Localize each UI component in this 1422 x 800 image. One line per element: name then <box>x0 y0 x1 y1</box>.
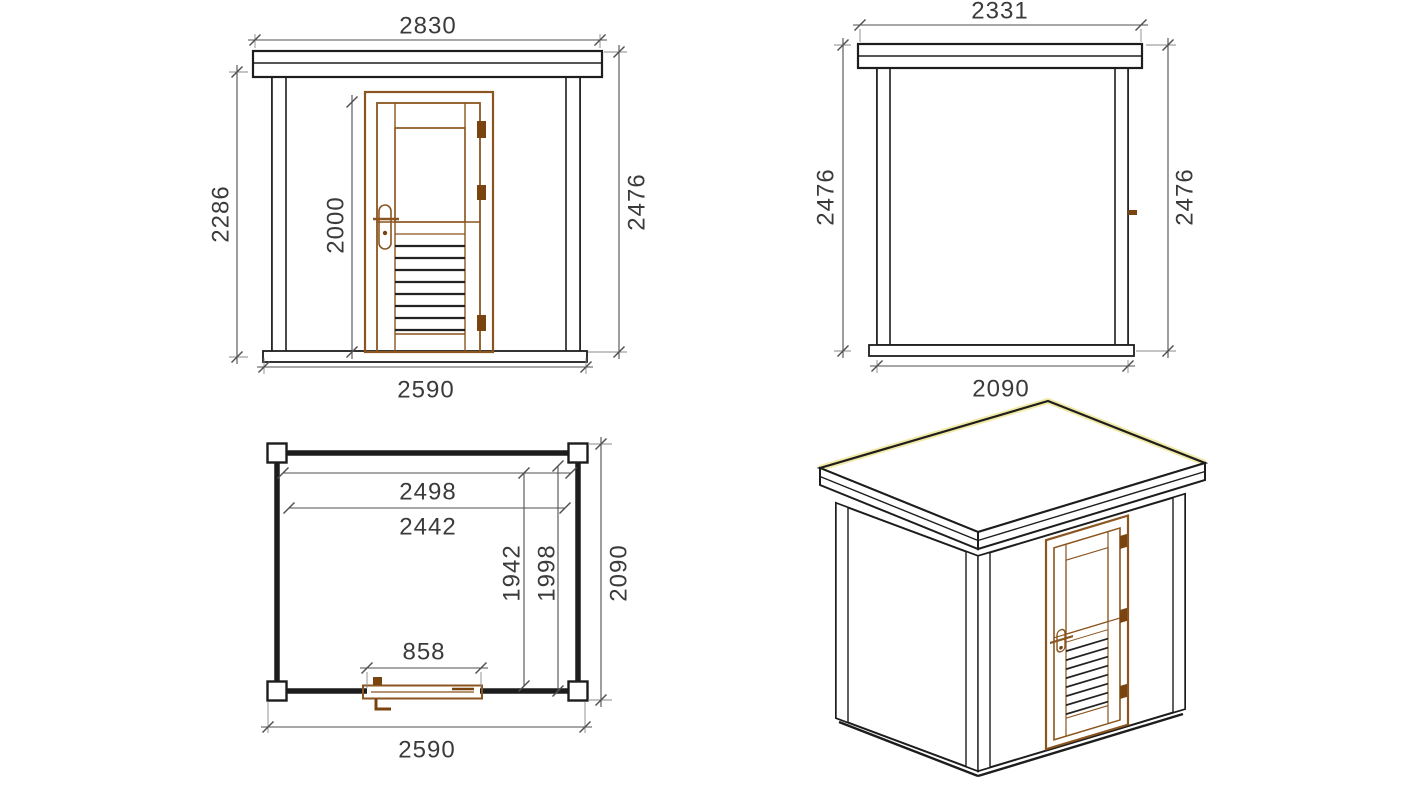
dim-plan-door-opening: 858 <box>402 639 445 666</box>
side-base <box>869 345 1134 356</box>
front-elevation-view: 2830 2286 2000 2476 2590 <box>208 13 651 404</box>
iso-door-hinges <box>1120 534 1127 699</box>
iso-door-window <box>1066 548 1108 635</box>
dim-plan-outer-width: 2590 <box>398 737 455 764</box>
side-elevation-view: 2331 2476 2476 2090 <box>813 0 1199 403</box>
iso-front-corner-trim-left <box>966 552 978 772</box>
side-wall <box>877 68 1128 345</box>
drawing-canvas: 2830 2286 2000 2476 2590 <box>0 0 1422 800</box>
front-right-corner-trim <box>566 76 580 352</box>
iso-foundation <box>839 714 1183 776</box>
side-door-handle-mark <box>1128 210 1137 215</box>
front-door <box>365 92 493 352</box>
plan-door-leaf <box>363 677 482 709</box>
dim-front-roof-width: 2830 <box>399 13 456 40</box>
dim-side-base-depth: 2090 <box>972 376 1029 403</box>
iso-roof <box>820 401 1205 549</box>
dim-front-total-height: 2476 <box>624 173 651 230</box>
dim-plan-inner-width-2: 2442 <box>399 514 456 541</box>
iso-door-architrave <box>1046 516 1128 750</box>
dim-front-base-width: 2590 <box>397 377 454 404</box>
front-wall <box>272 76 580 352</box>
front-roof <box>253 51 602 77</box>
side-roof <box>858 44 1142 68</box>
iso-front-corner-trim-right <box>978 552 990 771</box>
iso-left-wall <box>836 503 978 771</box>
iso-right-corner-trim <box>1173 494 1185 713</box>
dim-plan-inner-width: 2498 <box>399 479 456 506</box>
dim-front-door-height: 2000 <box>323 196 350 253</box>
door-hinges <box>477 121 486 331</box>
dim-side-height-right: 2476 <box>1172 168 1199 225</box>
shed-technical-drawing: 2830 2286 2000 2476 2590 <box>0 0 1422 800</box>
iso-door-slats <box>1066 639 1108 715</box>
front-left-corner-trim <box>272 76 286 352</box>
door-window <box>395 128 465 222</box>
side-right-corner-trim <box>1115 68 1128 345</box>
door-slats <box>395 246 465 330</box>
isometric-view <box>820 401 1205 776</box>
plan-door-handle-nub <box>373 677 382 685</box>
iso-left-corner-trim <box>836 503 848 723</box>
plan-door-handle <box>376 699 391 709</box>
floor-plan-view: 2498 2442 1942 1998 2090 858 2590 <box>261 437 633 764</box>
dim-side-roof-depth: 2331 <box>971 0 1028 25</box>
side-left-corner-trim <box>877 68 890 345</box>
dim-front-wall-height: 2286 <box>208 185 235 242</box>
dim-plan-inner-depth-2: 1998 <box>534 544 561 601</box>
iso-door <box>1046 516 1128 750</box>
dim-side-height-left: 2476 <box>813 168 840 225</box>
dim-plan-inner-depth: 1942 <box>499 544 526 601</box>
dim-plan-outer-depth: 2090 <box>606 544 633 601</box>
